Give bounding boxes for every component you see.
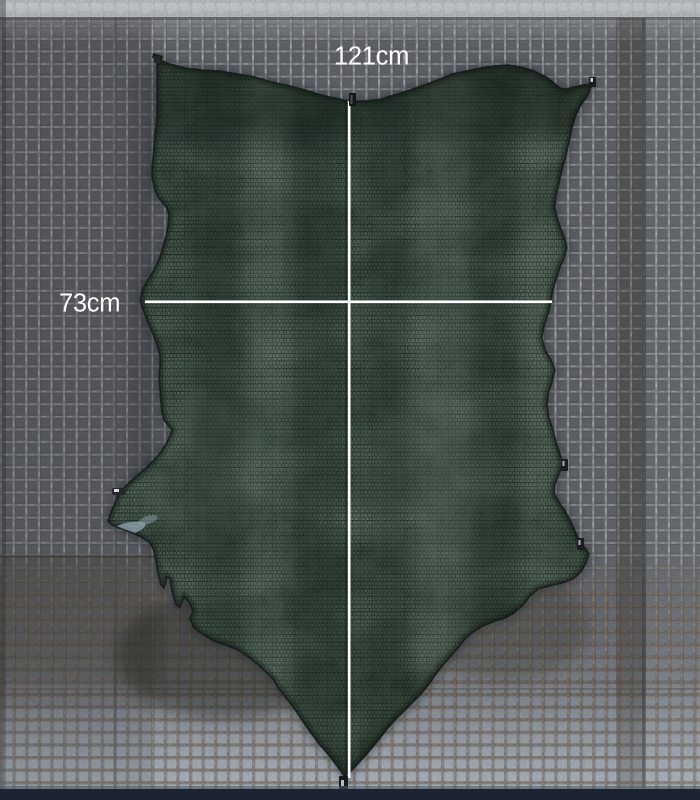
svg-text:121cm: 121cm — [334, 43, 409, 71]
svg-text:73cm: 73cm — [59, 290, 120, 318]
